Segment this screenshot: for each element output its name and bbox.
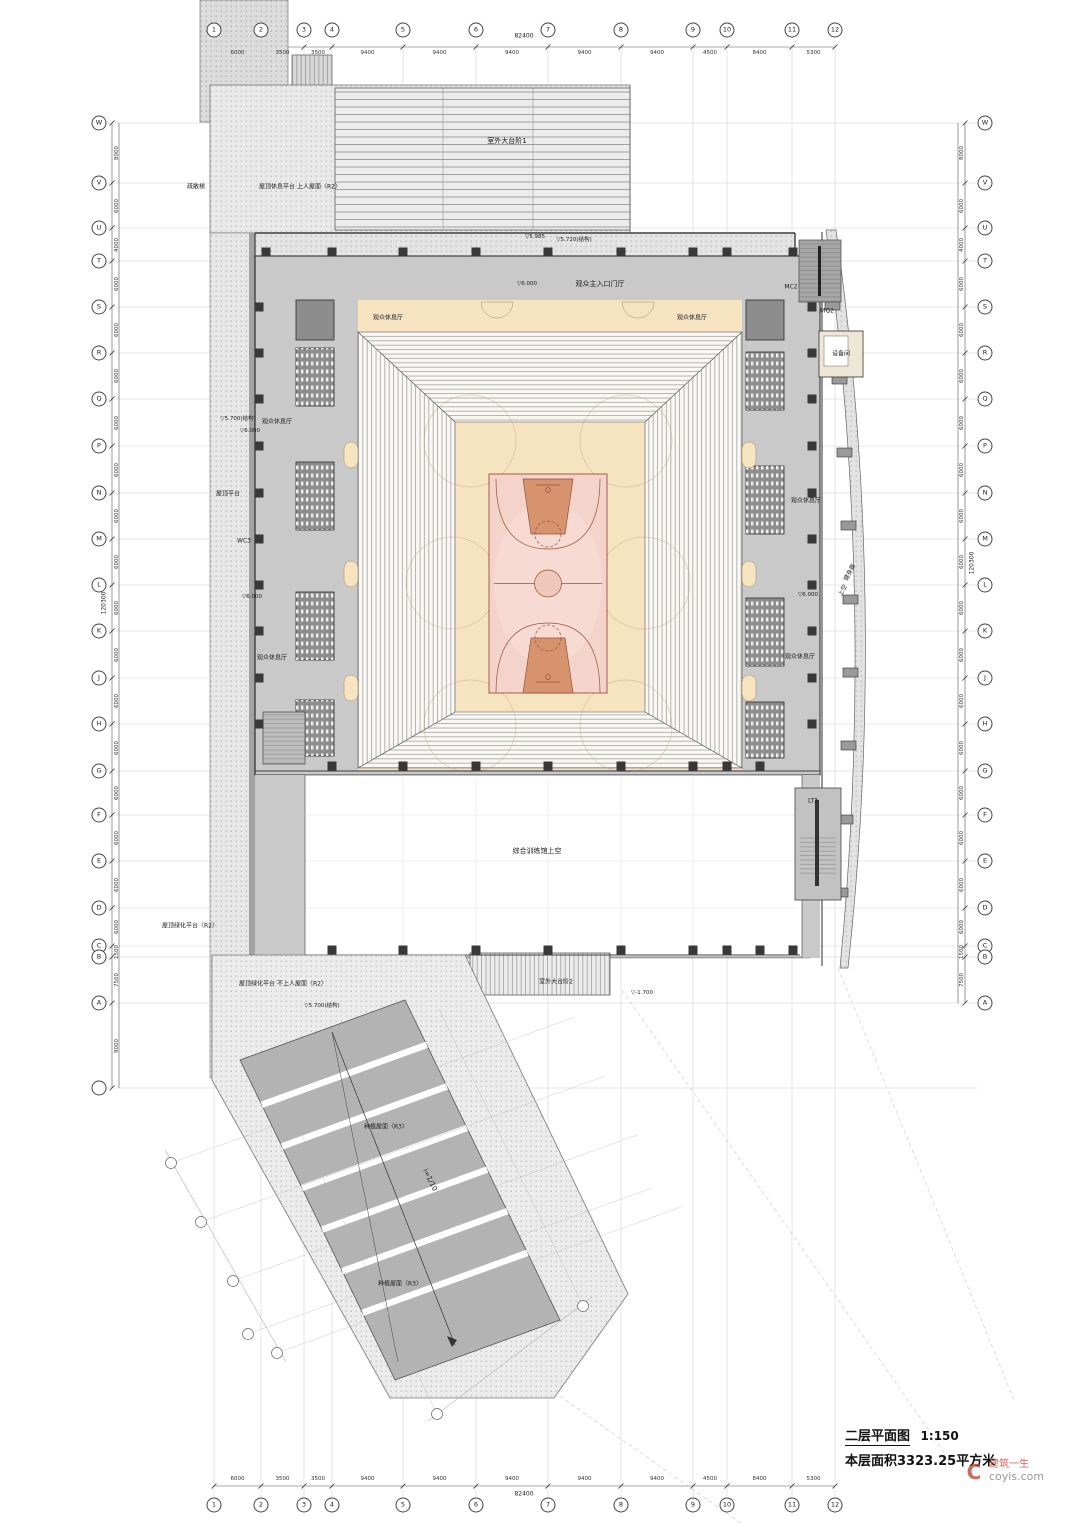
outdoor-steps-1 xyxy=(210,85,630,233)
watermark-brand: 建筑一生 xyxy=(989,1455,1044,1470)
drawing-scale: 1:150 xyxy=(921,1429,959,1443)
overall-dimension-right: 120300 xyxy=(969,552,976,575)
drawing-title: 二层平面图 xyxy=(845,1429,910,1446)
overall-dimension-left: 120300 xyxy=(101,592,108,615)
basketball-court xyxy=(489,474,607,693)
floor-plan-sheet: 112233445566778899101011111212WWVVUUTTSS… xyxy=(0,0,1080,1527)
plan-drawing xyxy=(0,0,1080,1527)
watermark-site: coyis.com xyxy=(989,1470,1044,1483)
watermark-logo: C xyxy=(963,1461,985,1483)
watermark: C 建筑一生 coyis.com xyxy=(963,1455,1044,1483)
left-roof-terrace xyxy=(210,233,257,1078)
left-corridor xyxy=(255,775,305,958)
overall-dimension-bottom: 82400 xyxy=(514,1491,533,1498)
overall-dimension-top: 82400 xyxy=(514,33,533,40)
training-hall-void xyxy=(305,775,802,957)
